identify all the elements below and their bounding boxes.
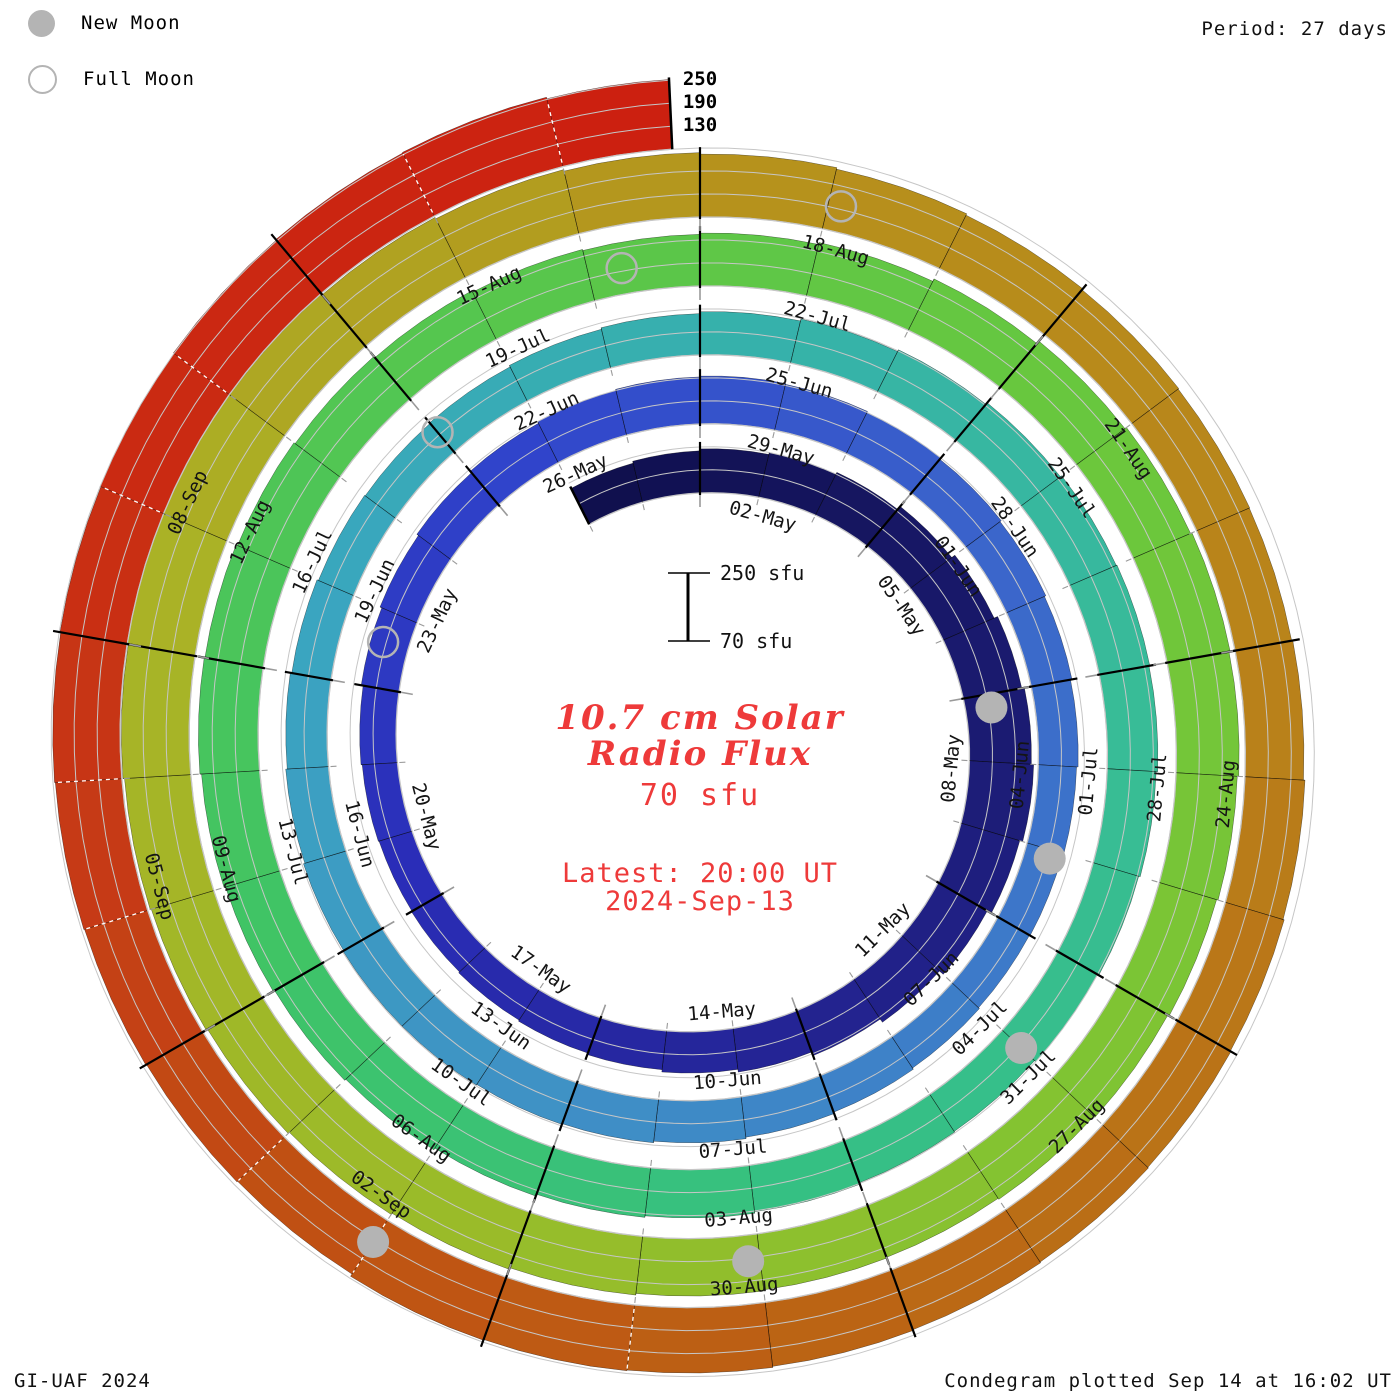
chart-title-line2: Radio Flux <box>588 734 812 774</box>
flux-scale-bar: 250 sfu70 sfu <box>668 561 804 653</box>
moon-legend: New Moon Full Moon <box>28 6 195 118</box>
condegram-page: 02-May05-May08-May11-May14-May17-May20-M… <box>0 0 1400 1400</box>
credit-label: GI-UAF 2024 <box>14 1370 151 1392</box>
full-moon-icon <box>28 65 57 94</box>
chart-title-line1: 10.7 cm Solar <box>555 698 844 738</box>
new-moon-marker <box>732 1245 764 1277</box>
radial-axis-tick-250: 250 <box>683 68 717 90</box>
scale-top-label: 250 sfu <box>720 561 804 585</box>
date-label-08-May: 08-May <box>937 733 965 803</box>
period-label: Period: 27 days <box>1201 18 1388 40</box>
new-moon-marker <box>357 1226 389 1258</box>
date-label-30-Aug: 30-Aug <box>709 1273 779 1301</box>
latest-time-label: Latest: 20:00 UT <box>562 858 838 889</box>
legend-new-moon-row: New Moon <box>28 6 195 40</box>
new-moon-label: New Moon <box>81 12 181 34</box>
baseline-value-label: 70 sfu <box>640 778 760 813</box>
radial-axis-tick-190: 190 <box>683 91 717 113</box>
date-label-10-Jun: 10-Jun <box>692 1067 762 1095</box>
latest-date-label: 2024-Sep-13 <box>605 886 795 917</box>
legend-full-moon-row: Full Moon <box>28 62 195 96</box>
scale-bottom-label: 70 sfu <box>720 629 792 653</box>
new-moon-icon <box>28 10 55 37</box>
full-moon-label: Full Moon <box>83 68 195 90</box>
new-moon-marker <box>1005 1032 1037 1064</box>
plotted-timestamp-label: Condegram plotted Sep 14 at 16:02 UT <box>944 1370 1392 1392</box>
date-label-14-May: 14-May <box>687 998 757 1026</box>
radial-axis-tick-130: 130 <box>683 114 717 136</box>
date-label-07-Jul: 07-Jul <box>698 1136 768 1164</box>
new-moon-marker <box>1034 843 1066 875</box>
new-moon-marker <box>975 691 1007 723</box>
date-label-01-Jul: 01-Jul <box>1074 746 1102 816</box>
date-label-03-Aug: 03-Aug <box>704 1204 774 1232</box>
